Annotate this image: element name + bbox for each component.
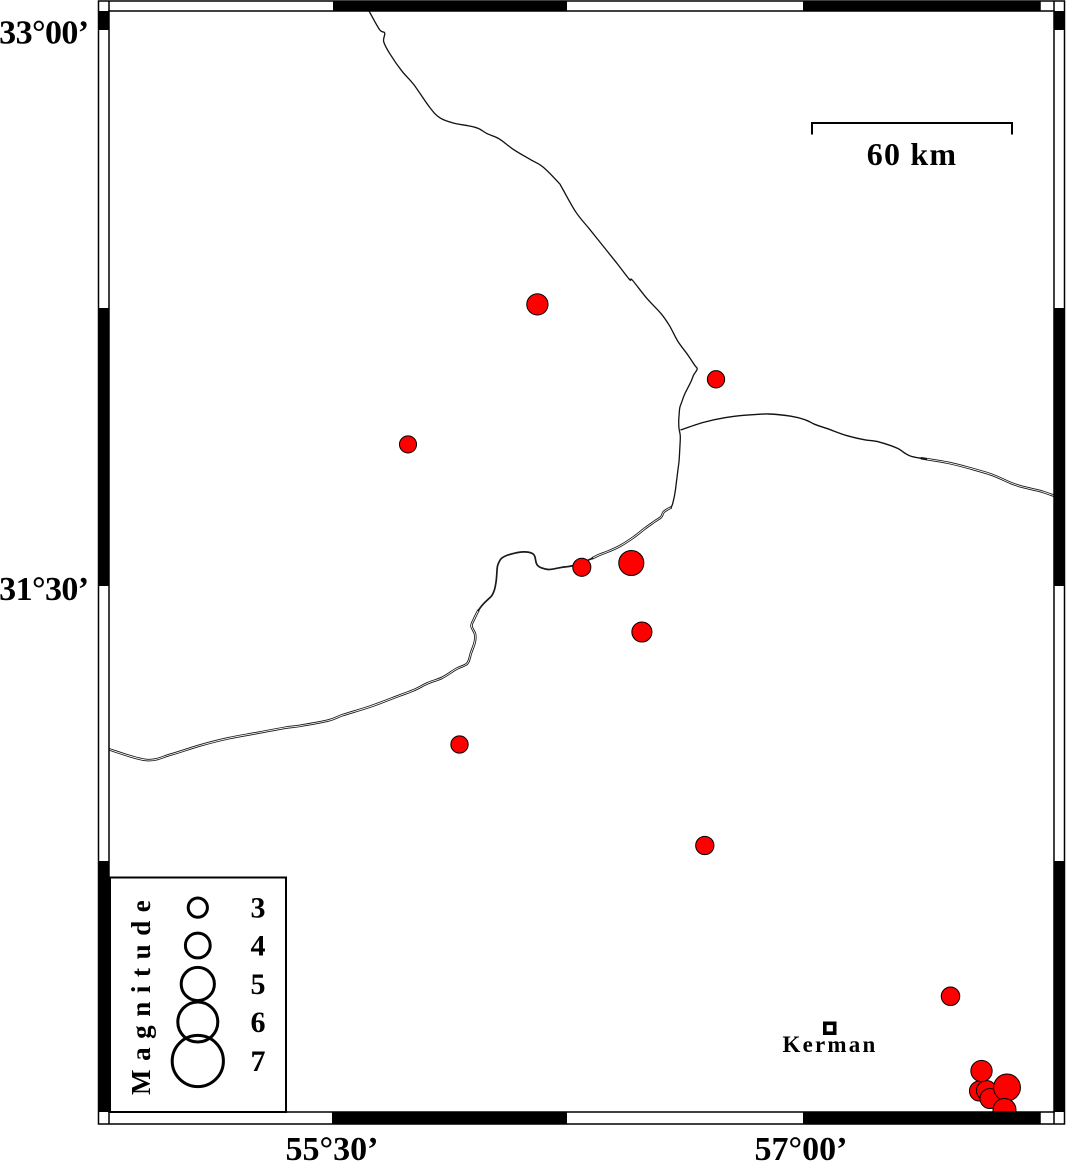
svg-text:60 km: 60 km bbox=[867, 136, 957, 172]
svg-text:6: 6 bbox=[251, 1006, 266, 1039]
svg-text:5: 5 bbox=[251, 968, 266, 1001]
svg-text:7: 7 bbox=[251, 1045, 266, 1078]
svg-text:Magnitude: Magnitude bbox=[126, 892, 156, 1095]
svg-text:4: 4 bbox=[251, 930, 266, 963]
svg-text:57°00’: 57°00’ bbox=[755, 1131, 848, 1163]
svg-text:55°30’: 55°30’ bbox=[286, 1131, 379, 1163]
svg-text:3: 3 bbox=[251, 892, 266, 925]
svg-text:Kerman: Kerman bbox=[783, 1032, 878, 1057]
svg-text:31°30’: 31°30’ bbox=[0, 571, 89, 608]
svg-text:33°00’: 33°00’ bbox=[0, 15, 89, 52]
